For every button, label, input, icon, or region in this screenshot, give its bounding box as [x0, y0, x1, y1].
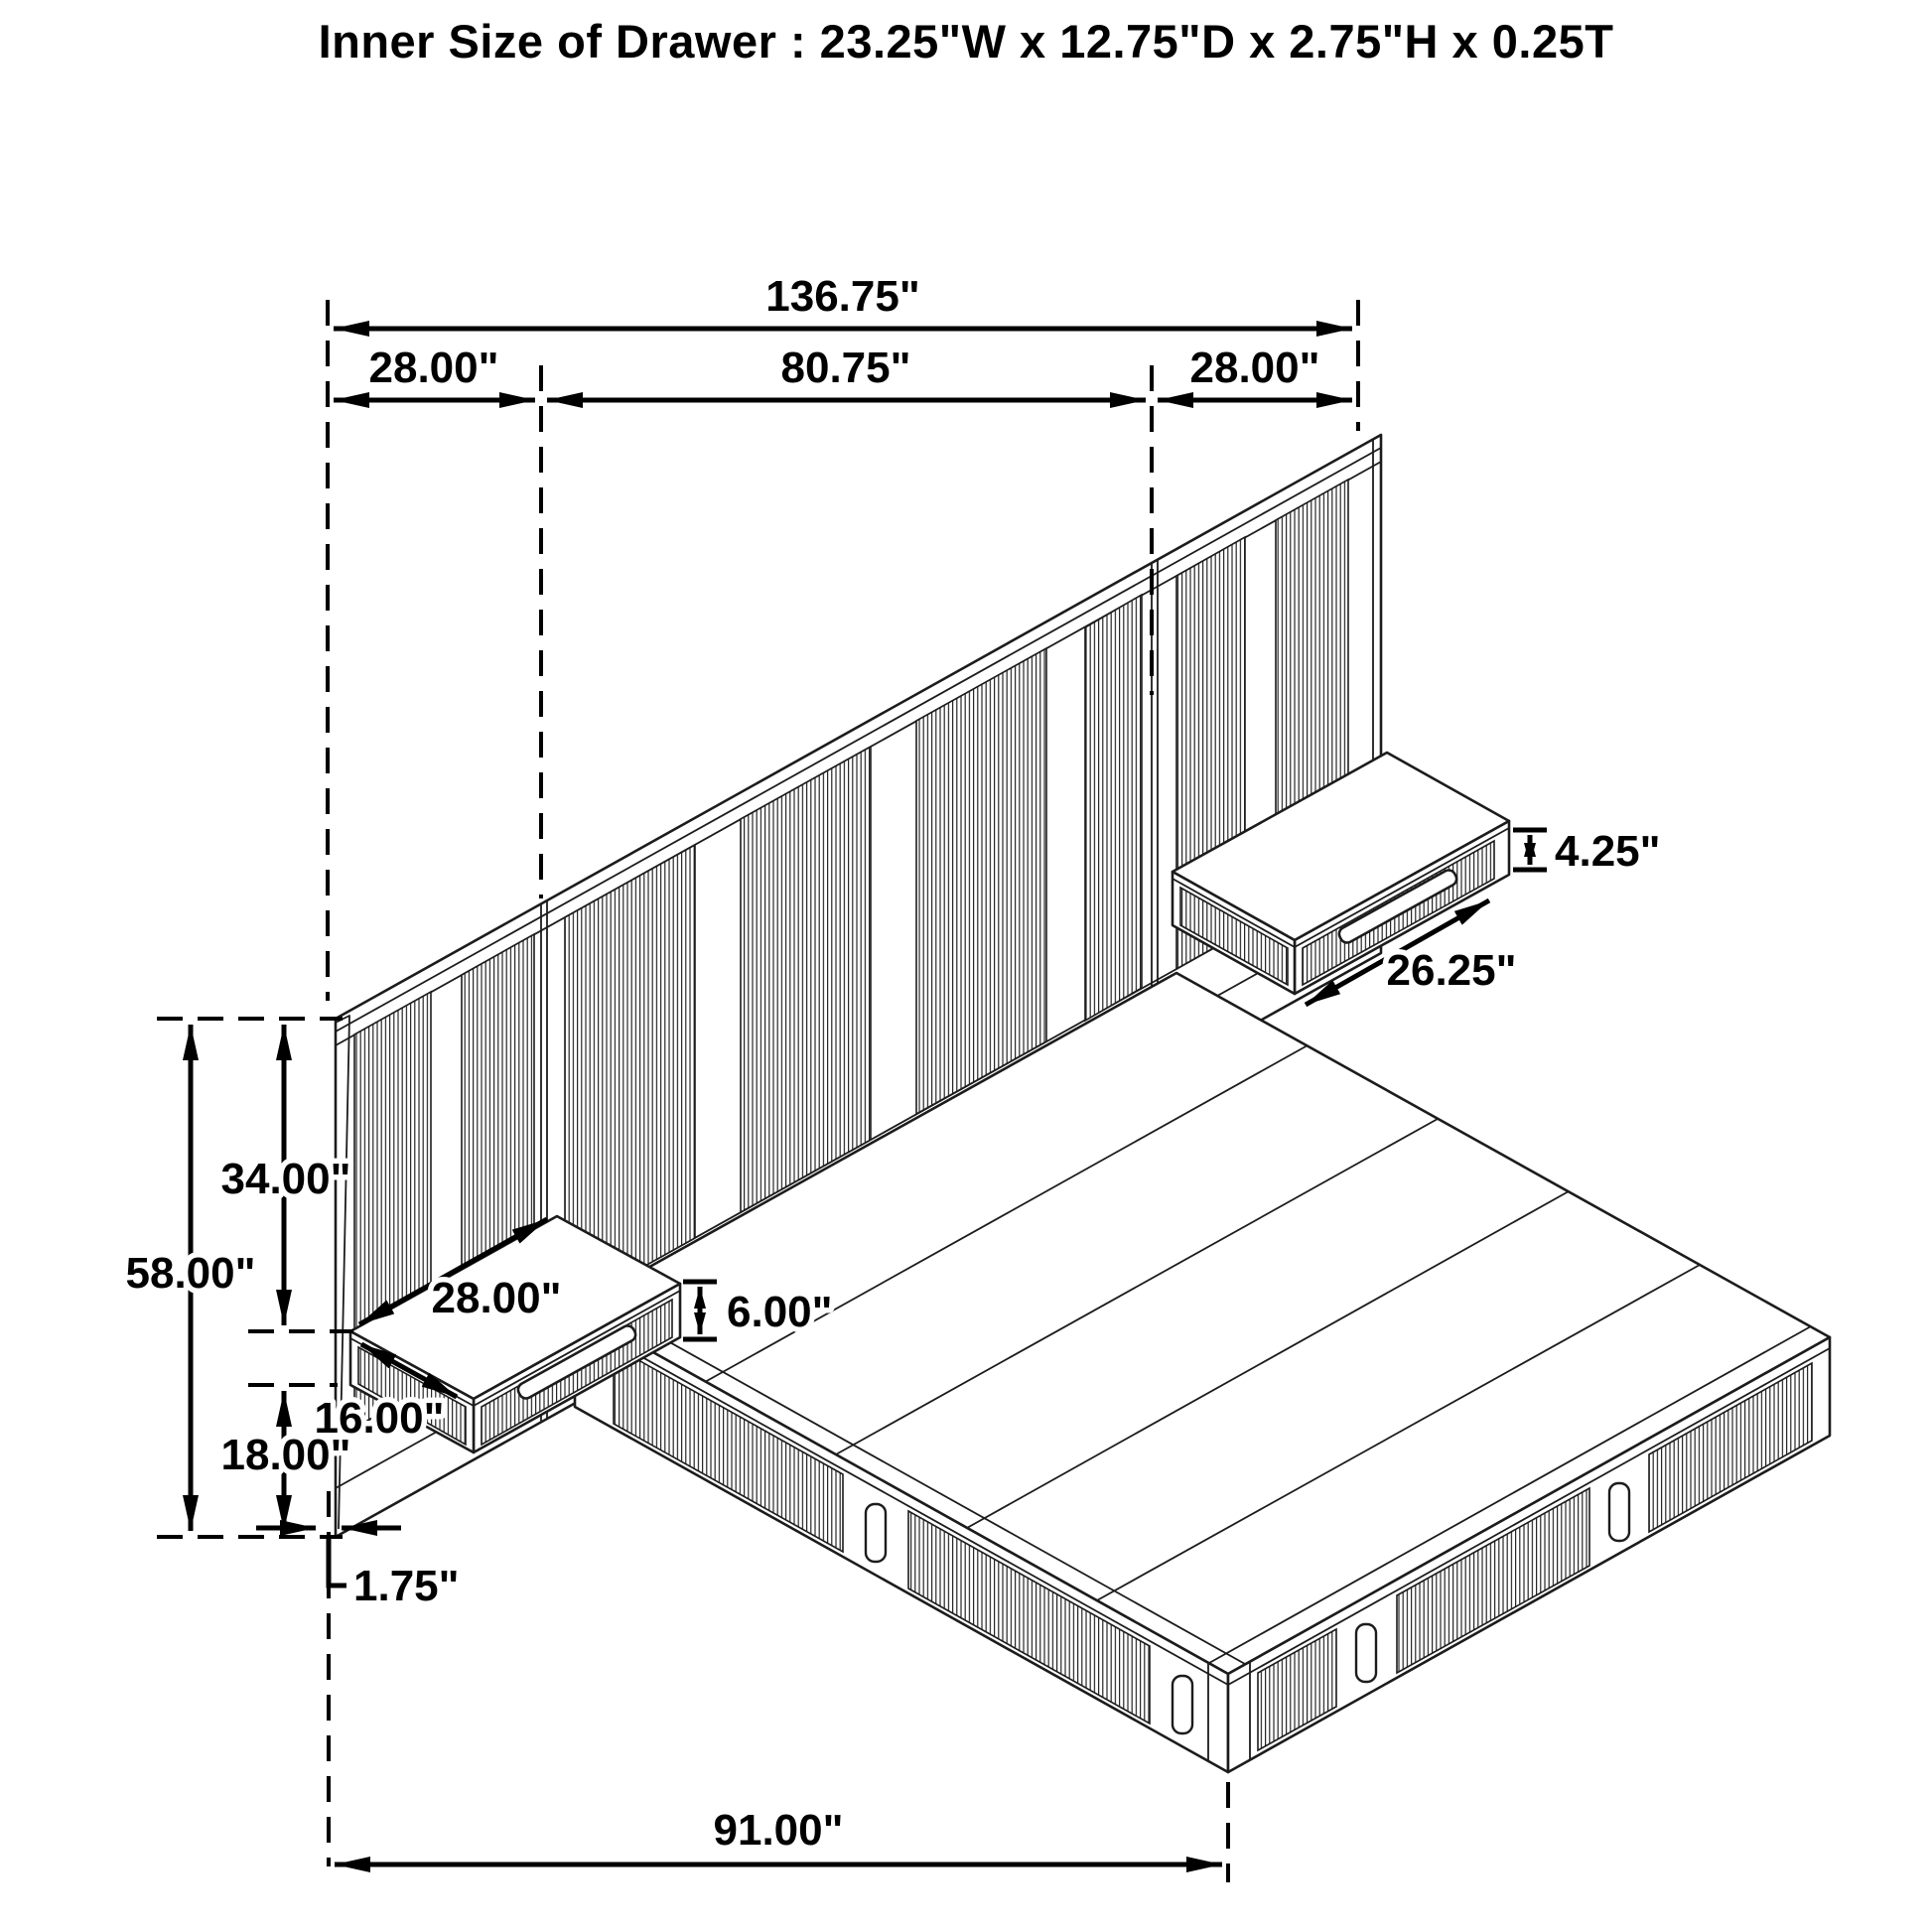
dim-bed-length: 91.00": [714, 1806, 844, 1855]
bed-dimension-diagram: 136.75" 28.00" 80.75" 28.00" 58.00" 34.0…: [0, 0, 1932, 1932]
dim-right-wing-width: 28.00": [1190, 344, 1320, 392]
dim-left-wing-width: 28.00": [369, 344, 499, 392]
dim-leg-offset: 1.75": [353, 1562, 460, 1610]
dim-total-height: 58.00": [126, 1249, 256, 1298]
dim-overall-width: 136.75": [765, 272, 919, 321]
dim-nightstand-depth: 16.00": [315, 1394, 445, 1443]
dim-upper-height: 34.00": [221, 1155, 351, 1203]
dim-center-width: 80.75": [781, 344, 911, 392]
dim-drawer-front-height: 4.25": [1555, 827, 1661, 876]
footboard-handle-slot: [1356, 1624, 1376, 1682]
dim-drawer-front-width: 26.25": [1387, 946, 1517, 995]
dim-nightstand-height: 6.00": [727, 1288, 833, 1336]
rail-handle-slot: [866, 1504, 886, 1562]
dim-nightstand-width: 28.00": [432, 1274, 562, 1322]
rail-handle-slot: [1173, 1676, 1192, 1733]
dimension-diagram-page: Inner Size of Drawer : 23.25"W x 12.75"D…: [0, 0, 1932, 1932]
footboard-handle-slot: [1609, 1483, 1629, 1541]
